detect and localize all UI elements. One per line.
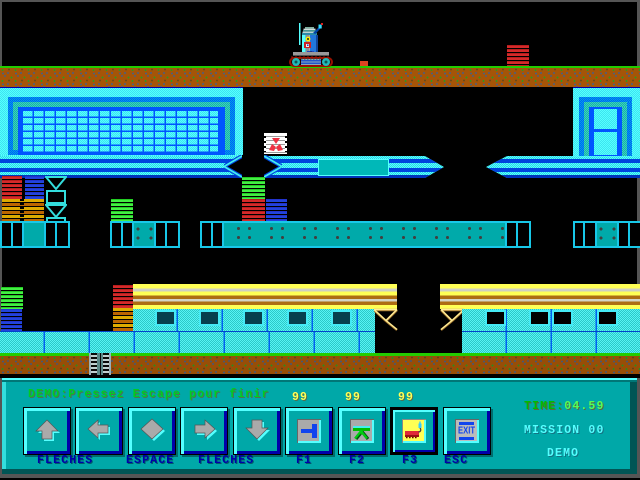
svg-text:EXIT: EXIT bbox=[458, 426, 475, 437]
